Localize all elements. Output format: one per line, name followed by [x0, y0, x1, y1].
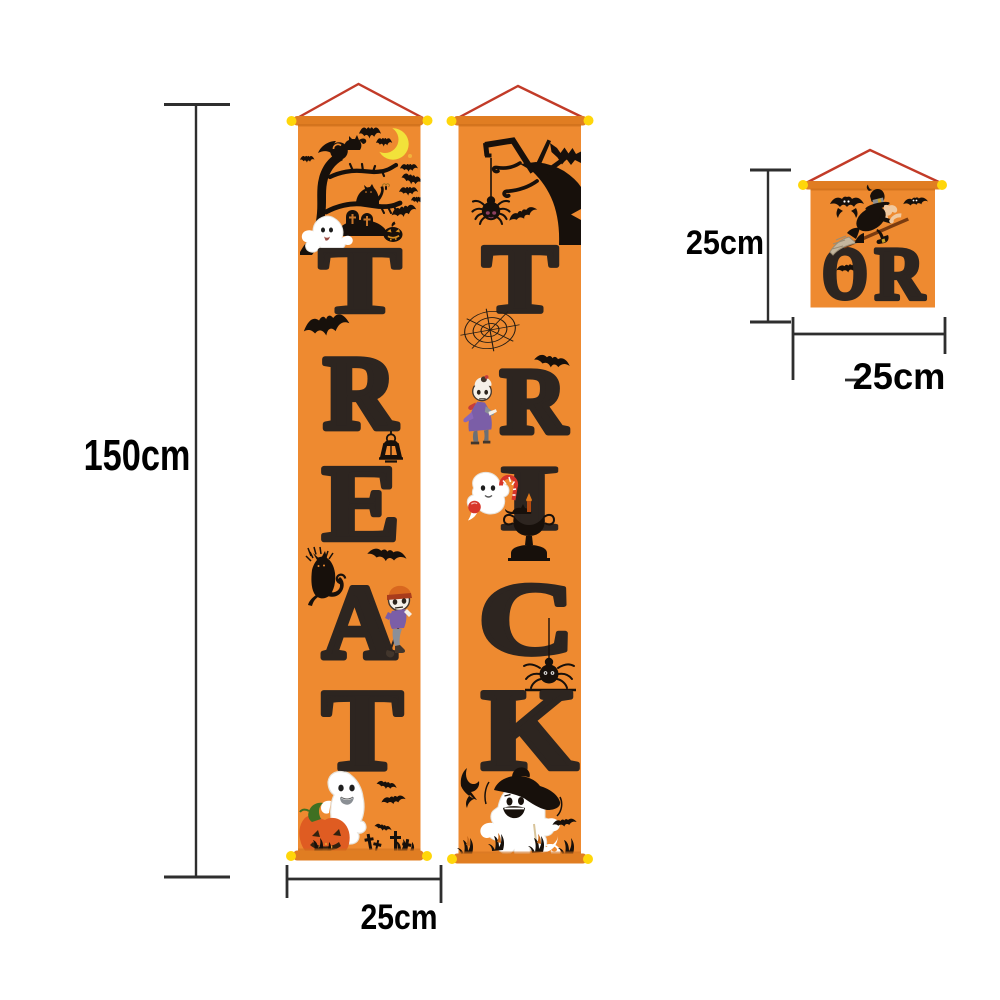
- svg-text:25cm: 25cm: [361, 897, 438, 937]
- svg-text:R: R: [875, 232, 926, 315]
- svg-text:25cm: 25cm: [853, 356, 946, 397]
- svg-text:25cm: 25cm: [686, 224, 764, 262]
- svg-text:A: A: [323, 566, 397, 681]
- svg-text:150cm: 150cm: [84, 431, 191, 480]
- svg-text:C: C: [478, 561, 575, 676]
- svg-text:R: R: [323, 336, 398, 452]
- svg-text:T: T: [482, 224, 558, 333]
- svg-text:E: E: [322, 444, 400, 563]
